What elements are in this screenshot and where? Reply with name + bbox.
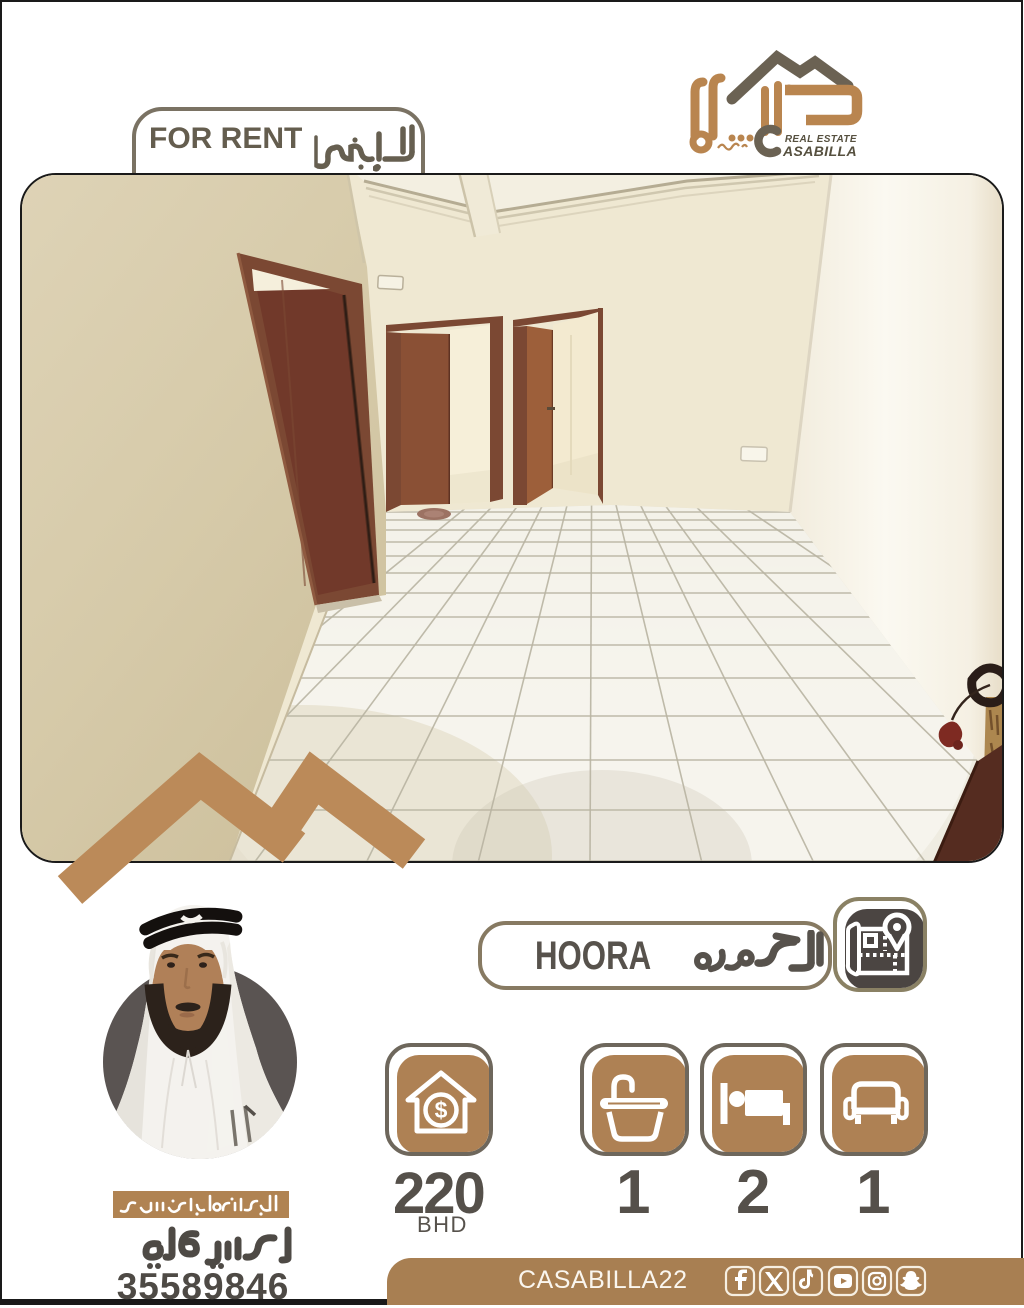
svg-text:$: $	[435, 1097, 448, 1123]
svg-text:ASABILLA: ASABILLA	[782, 143, 857, 159]
